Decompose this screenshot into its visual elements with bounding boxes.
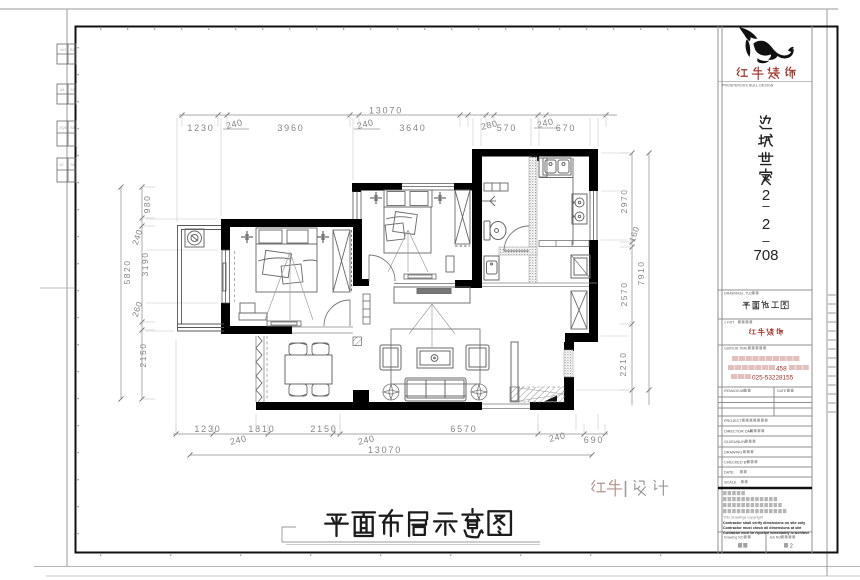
- svg-text:Contractor shall verify dimens: Contractor shall verify dimensions on si…: [723, 521, 806, 525]
- svg-text:GUIGUNLIN: GUIGUNLIN: [724, 440, 745, 444]
- svg-text:DRAWING/L.TU2: DRAWING/L.TU2: [724, 292, 752, 296]
- svg-text:2150: 2150: [138, 343, 148, 368]
- svg-text:GUIRUN TIME: GUIRUN TIME: [724, 347, 748, 351]
- svg-text:1230: 1230: [194, 424, 221, 434]
- svg-text:A1: A1: [60, 87, 66, 92]
- svg-text:JZ: JZ: [59, 162, 64, 167]
- svg-text:2210: 2210: [618, 352, 628, 377]
- svg-text:Job NO: Job NO: [769, 536, 781, 540]
- svg-text:1230: 1230: [187, 123, 214, 133]
- svg-text:2570: 2570: [619, 282, 629, 307]
- svg-text:980: 980: [142, 195, 152, 214]
- svg-text:13070: 13070: [368, 445, 402, 455]
- svg-text:1810: 1810: [248, 424, 275, 434]
- svg-text:7910: 7910: [636, 261, 646, 286]
- svg-text:This drawings copyright: This drawings copyright: [723, 516, 764, 520]
- svg-text:B2: B2: [70, 47, 76, 52]
- svg-text:2: 2: [762, 216, 770, 233]
- svg-text:3960: 3960: [277, 123, 304, 133]
- svg-text:PROJECT: PROJECT: [724, 419, 742, 423]
- svg-text:2970: 2970: [619, 189, 629, 214]
- svg-text:REMAGKAB: REMAGKAB: [724, 389, 745, 393]
- svg-text:458: 458: [776, 366, 787, 373]
- svg-text:5820: 5820: [122, 260, 132, 285]
- svg-text:Contractor must check all dime: Contractor must check all dimensions at …: [723, 526, 801, 530]
- svg-text:DATE: DATE: [777, 389, 787, 393]
- svg-text:CHECKED BY: CHECKED BY: [724, 461, 749, 465]
- svg-text:Drawing NO: Drawing NO: [724, 536, 744, 540]
- svg-text:2: 2: [790, 544, 793, 550]
- svg-text:690: 690: [584, 435, 604, 445]
- svg-text:–: –: [762, 198, 770, 213]
- svg-text:–: –: [762, 233, 770, 248]
- svg-text:SCALE: SCALE: [724, 481, 737, 485]
- svg-text:DATE: DATE: [724, 471, 734, 475]
- svg-text:1 F/6T: 1 F/6T: [724, 321, 735, 325]
- svg-text:S8: S8: [70, 125, 76, 130]
- svg-text:NO: NO: [60, 47, 66, 52]
- svg-text:570: 570: [497, 123, 517, 133]
- svg-text:2150: 2150: [310, 424, 337, 434]
- svg-text:PROSPEROUS BULL DESIGN: PROSPEROUS BULL DESIGN: [722, 84, 774, 88]
- svg-text:3640: 3640: [399, 123, 426, 133]
- svg-text:S2: S2: [70, 87, 76, 92]
- svg-text:S6: S6: [70, 162, 76, 167]
- svg-text:XQ6: XQ6: [59, 125, 68, 130]
- svg-text:3190: 3190: [140, 252, 150, 277]
- svg-text:DRAWING: DRAWING: [724, 451, 742, 455]
- svg-text:025-53228155: 025-53228155: [752, 375, 794, 382]
- svg-text:Contractor must be reported im: Contractor must be reported immediately …: [723, 531, 810, 535]
- svg-text:DIRECTOR DAR: DIRECTOR DAR: [724, 430, 753, 434]
- svg-text:708: 708: [753, 247, 778, 264]
- svg-text:6570: 6570: [450, 424, 477, 434]
- svg-text:13070: 13070: [369, 106, 403, 116]
